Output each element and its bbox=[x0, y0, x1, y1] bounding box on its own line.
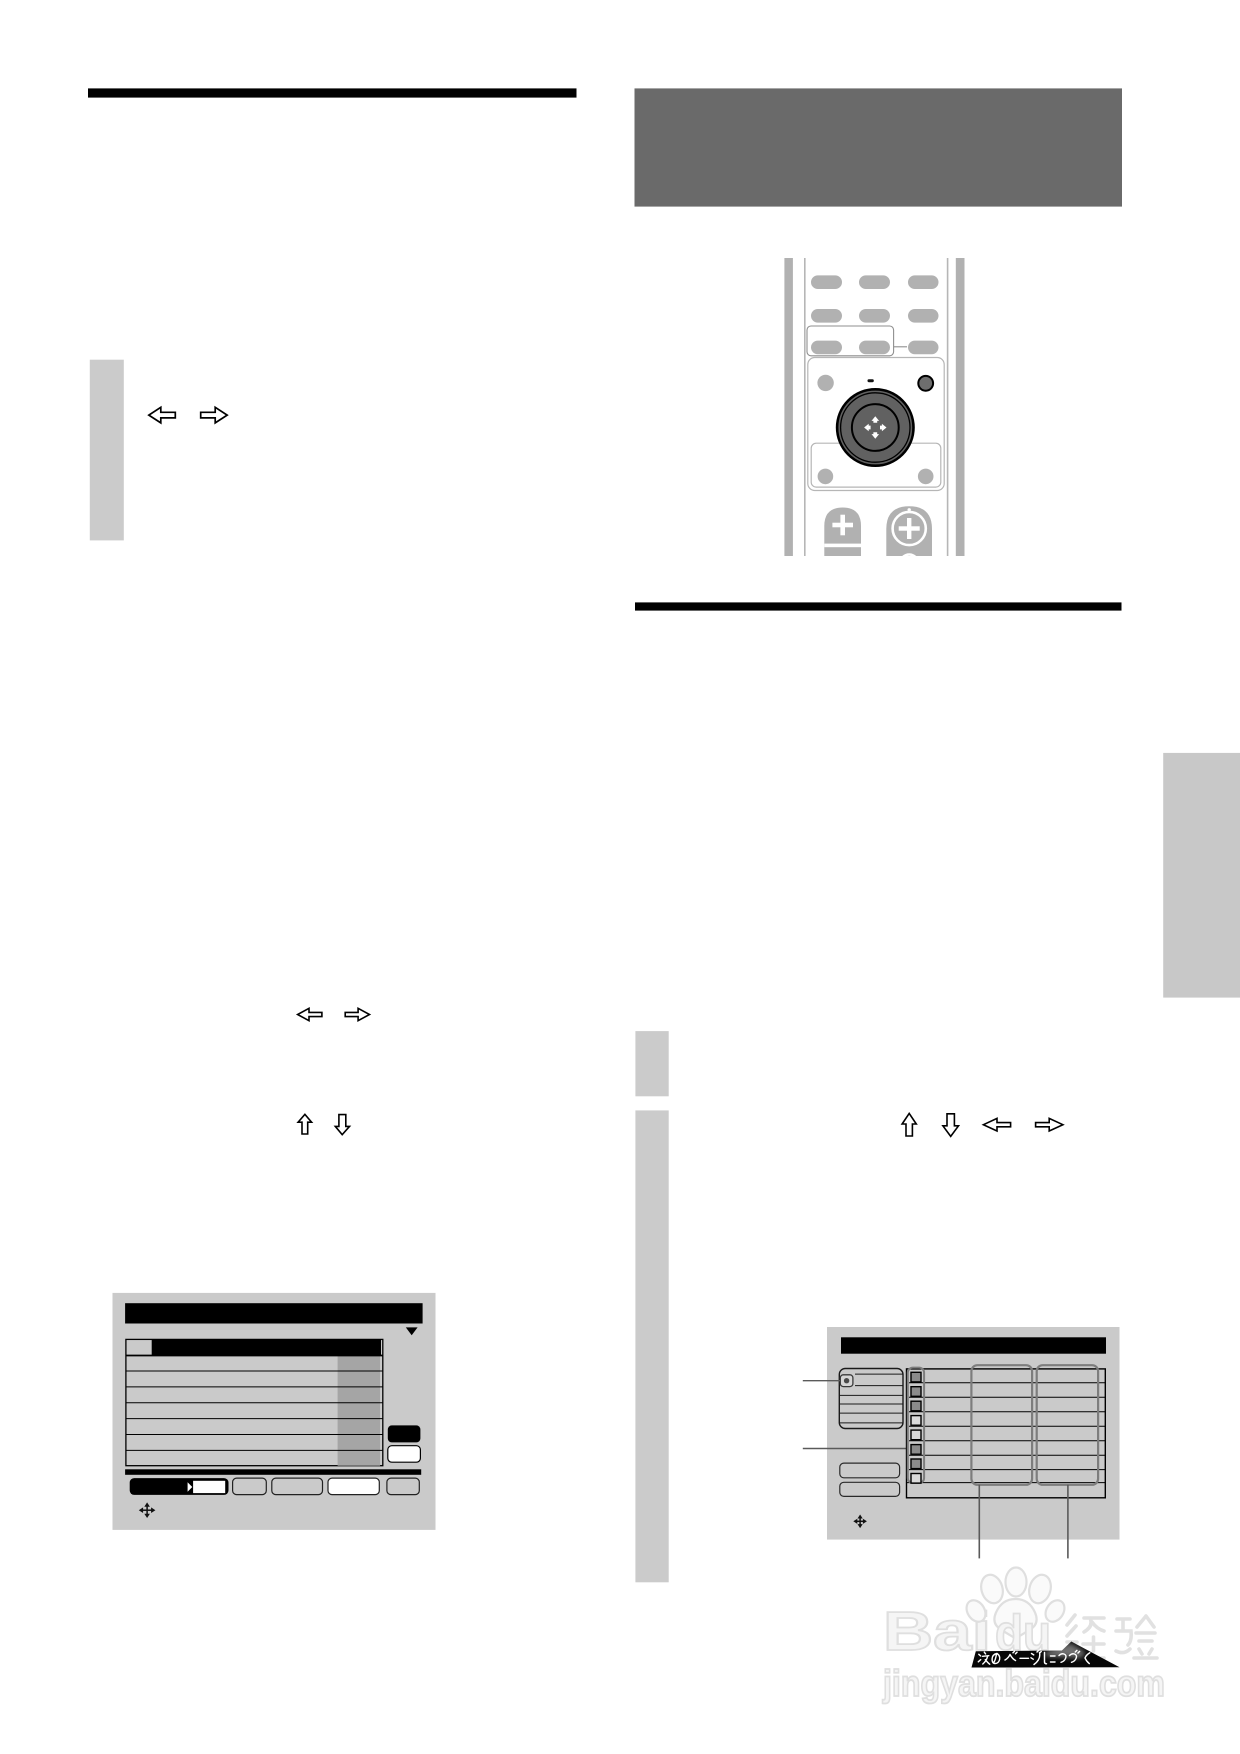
svg-text:jingyan.baidu.com: jingyan.baidu.com bbox=[882, 1663, 1165, 1704]
